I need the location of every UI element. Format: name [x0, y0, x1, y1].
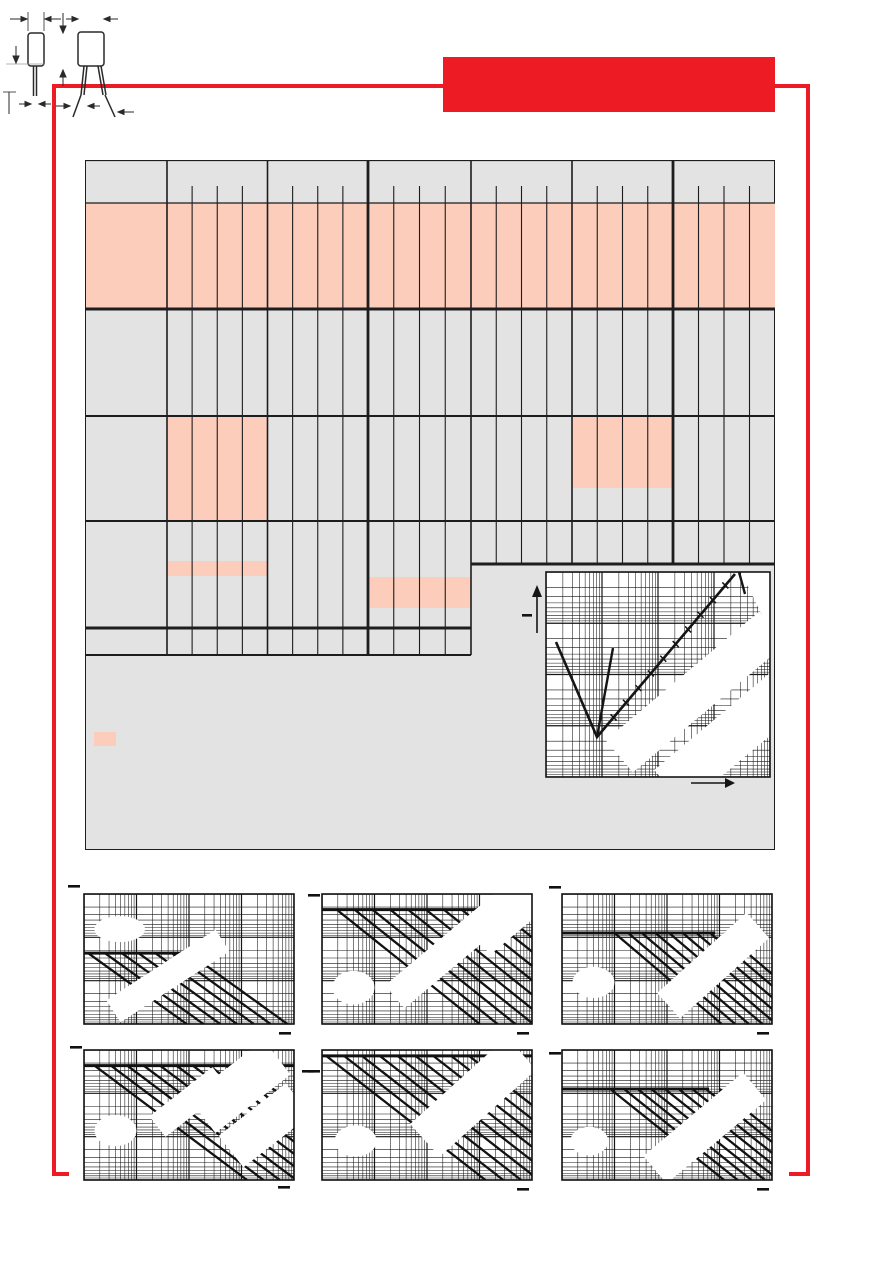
datasheet-page — [0, 0, 893, 1263]
derating-chart-4 — [64, 1036, 314, 1204]
derating-chart-6 — [542, 1036, 792, 1204]
impedance-frequency-chart — [520, 565, 782, 800]
capacitor-side-view — [28, 33, 44, 96]
frame-left-line — [52, 84, 56, 1176]
derating-chart-5 — [302, 1036, 552, 1204]
frame-right-foot — [789, 1172, 810, 1176]
derating-chart-2 — [302, 880, 552, 1048]
header-banner — [443, 57, 775, 112]
highlight-legend-swatch — [94, 732, 116, 746]
dimension-arrows — [3, 12, 134, 115]
derating-chart-3 — [542, 880, 792, 1048]
component-outline-drawing — [0, 0, 160, 130]
frame-right-line — [806, 84, 810, 1176]
derating-chart-1 — [64, 880, 314, 1048]
